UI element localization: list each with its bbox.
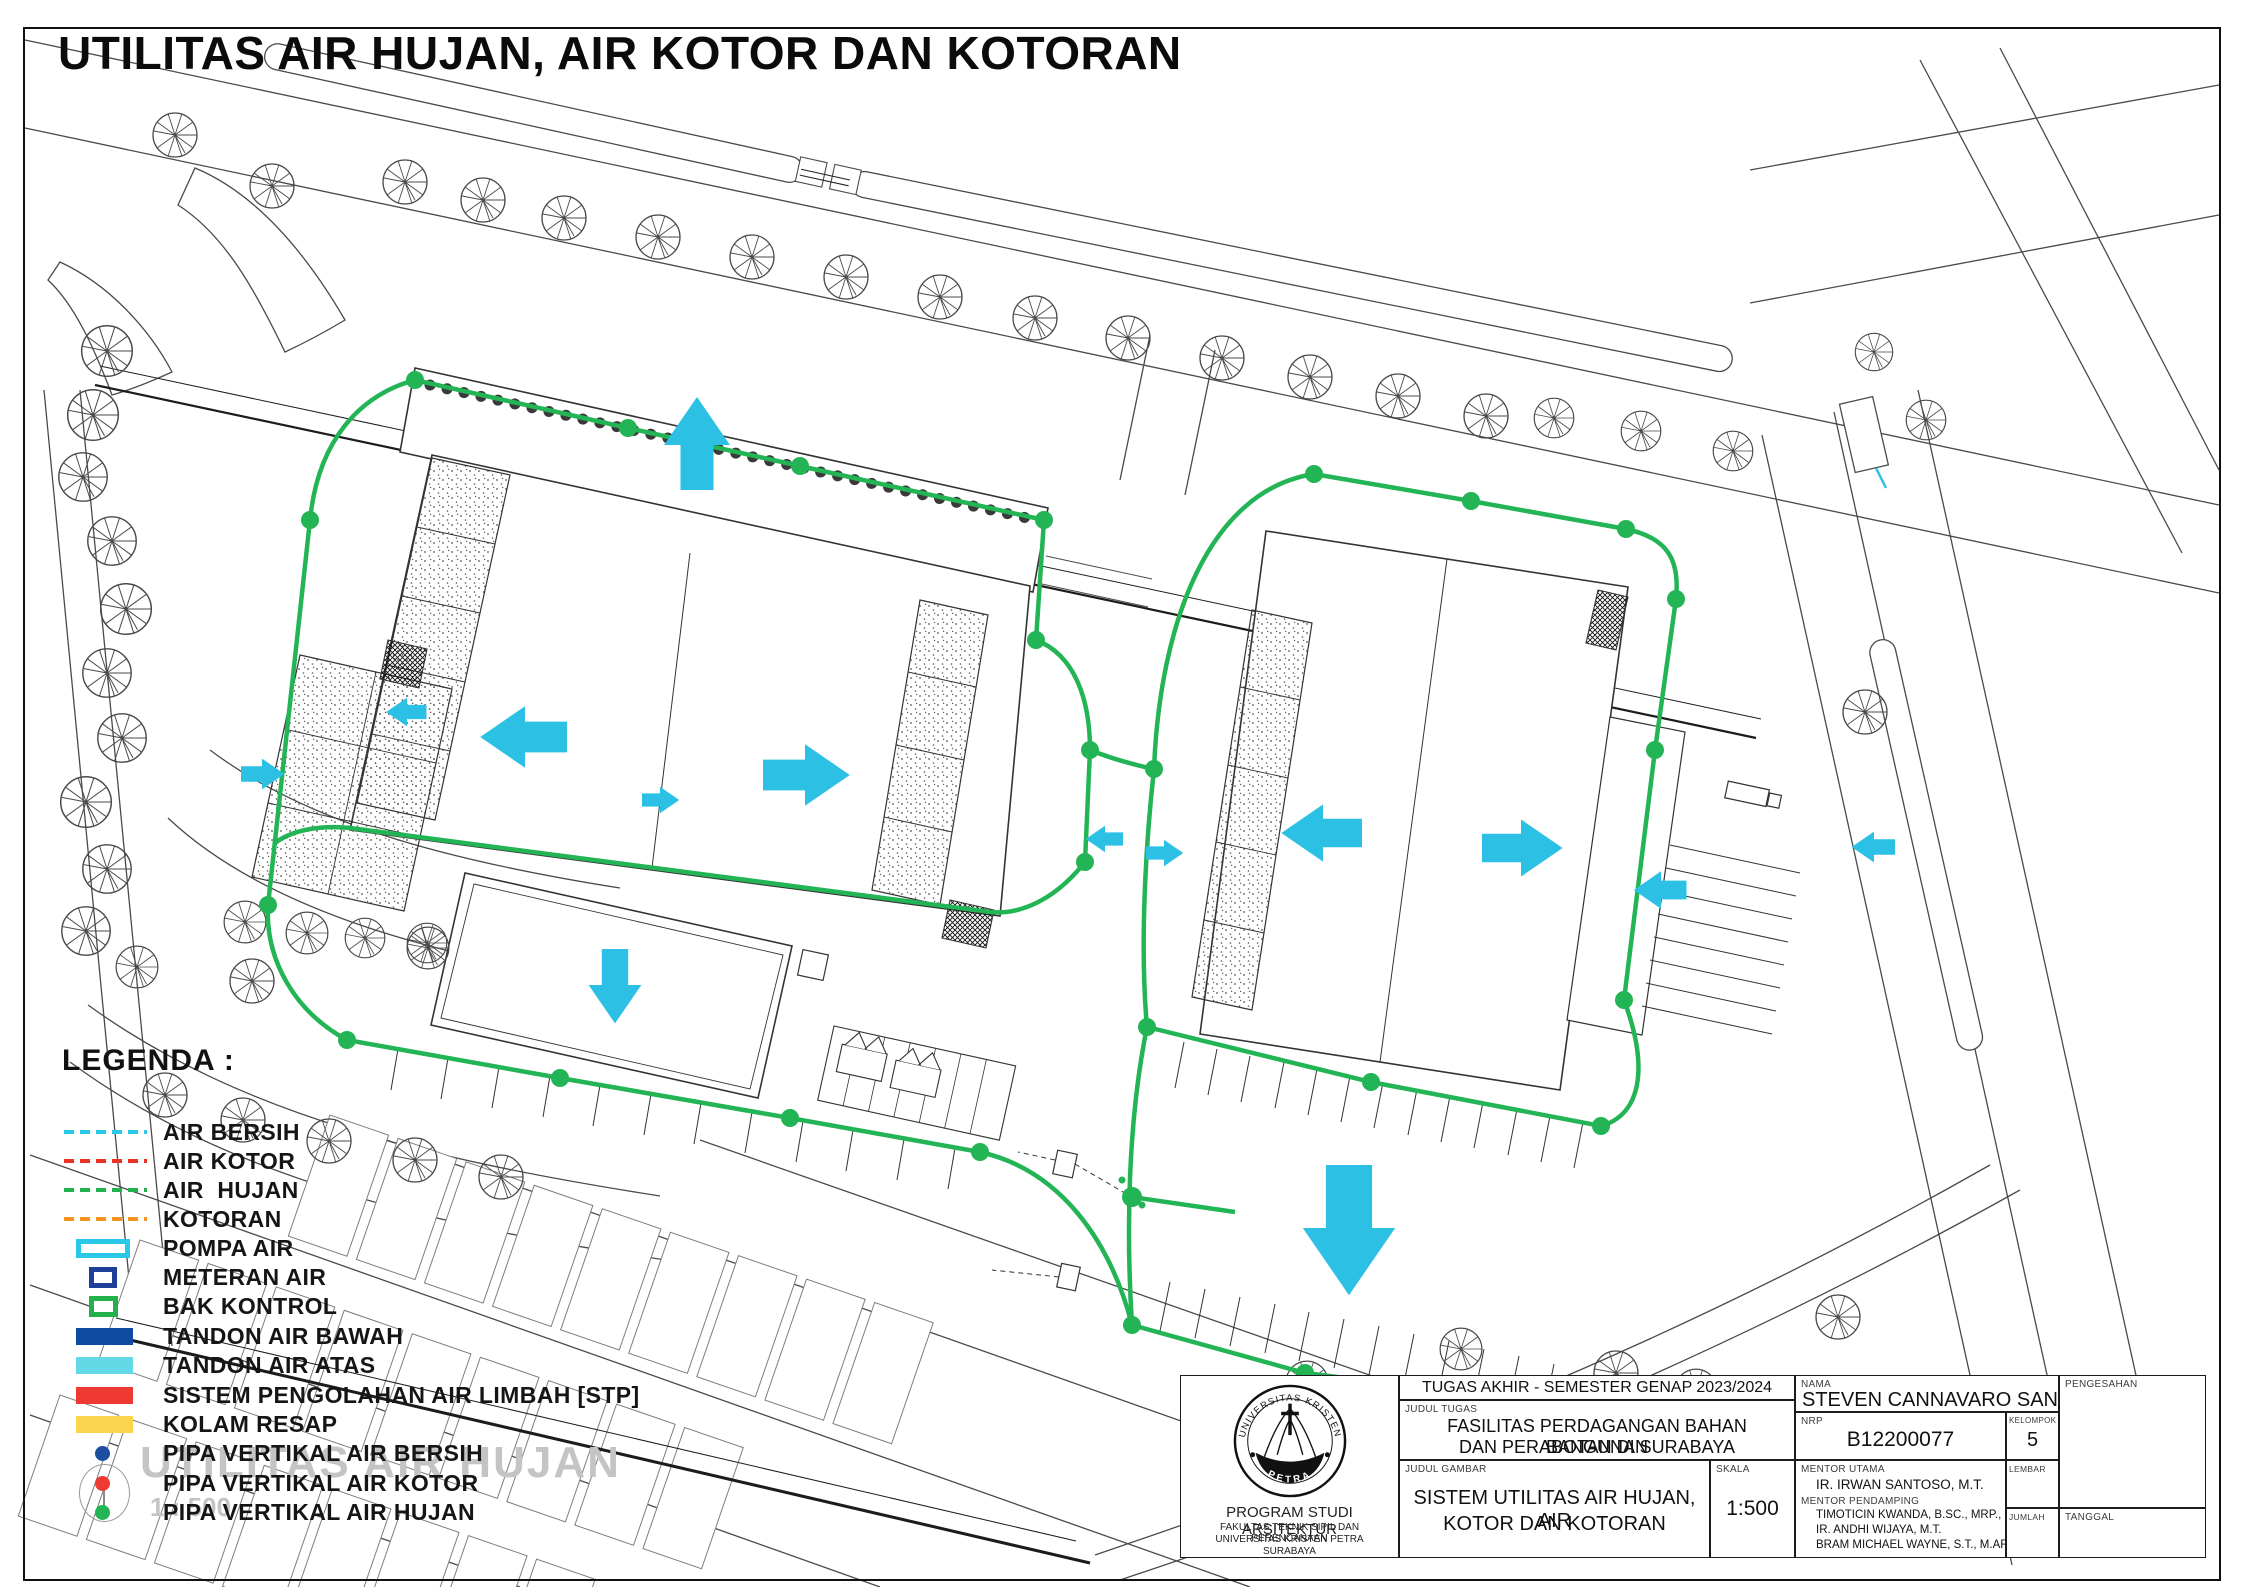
legend-item: PIPA VERTIKAL AIR KOTOR [62, 1469, 702, 1497]
mentor-utama-value: IR. IRWAN SANTOSO, M.T. [1816, 1477, 1984, 1492]
university-name: UNIVERSITAS KRISTEN PETRA [1181, 1534, 1398, 1545]
legend-item: POMPA AIR [62, 1234, 702, 1262]
stp-icon [76, 1387, 133, 1404]
legend-item: KOLAM RESAP [62, 1410, 702, 1438]
legend-item: BAK KONTROL [62, 1292, 702, 1320]
flow-arrow-down [1303, 1165, 1395, 1295]
legend-item: PIPA VERTIKAL AIR HUJAN [62, 1498, 702, 1526]
kelompok-value: 5 [2007, 1429, 2058, 1452]
mentor-cell: MENTOR UTAMA IR. IRWAN SANTOSO, M.T. MEN… [1795, 1460, 2006, 1558]
university-logo: UNIVERSITAS KRISTEN PETRA [1231, 1382, 1349, 1500]
page-title: UTILITAS AIR HUJAN, AIR KOTOR DAN KOTORA… [58, 26, 1182, 80]
pompa-air-icon [76, 1239, 130, 1258]
nrp-value: B12200077 [1796, 1428, 2005, 1452]
city-name: SURABAYA [1181, 1546, 1398, 1557]
flow-arrow-small [1852, 832, 1895, 863]
skala-value: 1:500 [1711, 1497, 1794, 1521]
assignment-header: TUGAS AKHIR - SEMESTER GENAP 2023/2024 [1400, 1379, 1794, 1397]
jumlah-cell: JUMLAH [2006, 1508, 2059, 1558]
meteran-air-icon [89, 1267, 117, 1288]
pengesahan-cell: PENGESAHAN [2059, 1375, 2206, 1508]
mentor-pendamping-1: TIMOTICIN KWANDA, B.SC., MRP., PH.D. [1816, 1509, 2035, 1521]
legend-item: KOTORAN [62, 1205, 702, 1233]
legend-item: AIR KOTOR [62, 1147, 702, 1175]
legend-item: SISTEM PENGOLAHAN AIR LIMBAH [STP] [62, 1381, 702, 1409]
pipa-vertikal-air-kotor-icon [95, 1476, 110, 1491]
pipa-vertikal-air-bersih-icon [95, 1446, 110, 1461]
air-kotor-line-icon [64, 1159, 147, 1163]
legend-item: AIR BERSIH [62, 1118, 702, 1146]
judul-tugas-cell: JUDUL TUGAS FASILITAS PERDAGANGAN BAHAN … [1399, 1400, 1795, 1460]
air-hujan-line-icon [64, 1188, 147, 1192]
legend-item: PIPA VERTIKAL AIR BERSIH [62, 1439, 702, 1467]
tandon-air-atas-icon [76, 1357, 133, 1374]
mentor-pendamping-3: BRAM MICHAEL WAYNE, S.T., M.ARS. [1816, 1539, 2019, 1551]
pipa-vertikal-air-hujan-icon [95, 1505, 110, 1520]
institution-cell: UNIVERSITAS KRISTEN PETRA PROGRAM STUDI … [1180, 1375, 1399, 1558]
nama-cell: NAMA STEVEN CANNAVARO SANTOSO [1795, 1375, 2059, 1412]
lembar-cell: LEMBAR [2006, 1460, 2059, 1508]
mentor-pendamping-2: IR. ANDHI WIJAYA, M.T. [1816, 1524, 1941, 1536]
tandon-air-bawah-icon [76, 1328, 133, 1345]
flow-arrow-small [1086, 826, 1123, 852]
header-cell: TUGAS AKHIR - SEMESTER GENAP 2023/2024 [1399, 1375, 1795, 1400]
bak-kontrol-icon [89, 1296, 118, 1317]
legend-item: METERAN AIR [62, 1263, 702, 1291]
kolam-resap-icon [76, 1416, 133, 1433]
road-crossing [795, 157, 861, 195]
legend-heading: LEGENDA : [62, 1044, 235, 1078]
judul-gambar-cell: JUDUL GAMBAR SISTEM UTILITAS AIR HUJAN, … [1399, 1460, 1710, 1558]
air-bersih-line-icon [64, 1130, 147, 1134]
tanggal-cell: TANGGAL [2059, 1508, 2206, 1558]
drawing-sheet: UTILITAS AIR HUJAN, AIR KOTOR DAN KOTORA… [0, 0, 2245, 1587]
legend-item: AIR HUJAN [62, 1176, 702, 1204]
truck-icon [1725, 781, 1782, 809]
skala-cell: SKALA 1:500 [1710, 1460, 1795, 1558]
kelompok-cell: KELOMPOK 5 [2006, 1412, 2059, 1460]
flow-arrow-small [1146, 840, 1183, 866]
legend-item: TANDON AIR BAWAH [62, 1322, 702, 1350]
kotoran-line-icon [64, 1217, 147, 1221]
nrp-cell: NRP B12200077 [1795, 1412, 2006, 1460]
legend-item: TANDON AIR ATAS [62, 1351, 702, 1379]
